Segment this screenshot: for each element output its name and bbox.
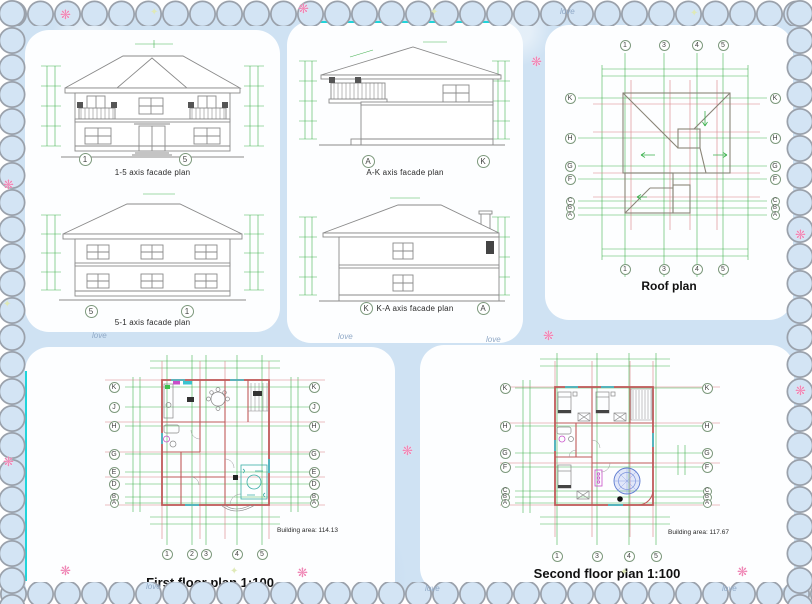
building-area-label: Building area: 114.13: [277, 527, 338, 534]
axis-marker: A: [566, 211, 575, 220]
axis-marker: K: [109, 382, 120, 393]
axis-marker: K: [360, 302, 373, 315]
sparkle-icon: ✦: [3, 300, 11, 310]
axis-marker: 5: [85, 305, 98, 318]
axis-marker: G: [702, 448, 713, 459]
love-text: love: [560, 8, 575, 16]
panel-second-floor: 1 3 4 5 K H G F C B A K H G F C B A Buil…: [420, 345, 794, 592]
axis-marker: 2: [187, 549, 198, 560]
sparkle-icon: ✦: [230, 567, 238, 577]
axis-marker: 3: [659, 264, 670, 275]
sparkle-icon: ✦: [430, 8, 438, 18]
axis-marker: 1: [79, 153, 92, 166]
axis-marker: A: [362, 155, 375, 168]
axis-marker: K: [309, 382, 320, 393]
flower-icon: ❋: [298, 2, 309, 15]
axis-marker: 1: [181, 305, 194, 318]
flower-icon: ❋: [795, 228, 806, 241]
axis-marker: 1: [162, 549, 173, 560]
axis-marker: 3: [201, 549, 212, 560]
axis-marker: D: [309, 479, 320, 490]
axis-marker: A: [310, 499, 319, 508]
flower-icon: ❋: [3, 455, 14, 468]
axis-marker: K: [477, 155, 490, 168]
axis-marker: A: [501, 499, 510, 508]
first-floor-drawing: [25, 347, 395, 604]
flower-icon: ❋: [531, 55, 542, 68]
axis-marker: F: [565, 174, 576, 185]
love-text: love: [338, 333, 353, 341]
axis-marker: F: [770, 174, 781, 185]
axis-marker: 5: [718, 40, 729, 51]
sparkle-icon: ✦: [690, 9, 698, 19]
axis-marker: A: [703, 499, 712, 508]
axis-marker: H: [309, 421, 320, 432]
axis-marker: 4: [692, 40, 703, 51]
collage: 1 5 1-5 axis facade plan: [0, 0, 812, 604]
panel-first-floor: 1 2 3 4 5 K J H G E D B A K J H G E D B …: [25, 347, 395, 604]
axis-marker: H: [565, 133, 576, 144]
love-text: love: [146, 583, 161, 591]
cyan-accent-line: [305, 21, 503, 23]
axis-marker: G: [109, 449, 120, 460]
axis-marker: F: [500, 462, 511, 473]
axis-marker: 4: [692, 264, 703, 275]
facade-caption: A-K axis facade plan: [287, 168, 523, 177]
axis-marker: G: [309, 449, 320, 460]
love-text: love: [486, 336, 501, 344]
facade-caption: 5-1 axis facade plan: [25, 318, 280, 327]
facade-side-ak-drawing: [295, 35, 515, 151]
axis-marker: H: [500, 421, 511, 432]
axis-marker: G: [500, 448, 511, 459]
roof-plan-title: Roof plan: [545, 279, 793, 293]
love-text: love: [425, 585, 440, 593]
axis-marker: E: [109, 467, 120, 478]
facade-rear-drawing: [35, 190, 270, 302]
axis-marker: J: [309, 402, 320, 413]
axis-marker: K: [702, 383, 713, 394]
axis-marker: K: [770, 93, 781, 104]
cyan-accent-line: [25, 371, 27, 581]
axis-marker: E: [309, 467, 320, 478]
flower-icon: ❋: [60, 8, 71, 21]
facade-side-ka-drawing: [295, 191, 515, 305]
axis-marker: J: [109, 402, 120, 413]
axis-marker: D: [109, 479, 120, 490]
building-area-label: Building area: 117.67: [668, 529, 729, 536]
facade-front-drawing: [35, 38, 270, 158]
axis-marker: 3: [659, 40, 670, 51]
axis-marker: K: [500, 383, 511, 394]
axis-marker: 5: [651, 551, 662, 562]
flower-icon: ❋: [543, 329, 554, 342]
panel-roof-plan: 1 3 4 5 1 3 4 5 K H G F C B A K H G F C …: [545, 25, 793, 320]
axis-marker: 4: [232, 549, 243, 560]
axis-marker: 4: [624, 551, 635, 562]
flower-icon: ❋: [60, 564, 71, 577]
axis-marker: 5: [179, 153, 192, 166]
flower-icon: ❋: [402, 444, 413, 457]
roof-plan-drawing: [545, 25, 793, 295]
love-text: love: [722, 585, 737, 593]
axis-marker: G: [565, 161, 576, 172]
axis-marker: A: [771, 211, 780, 220]
axis-marker: H: [702, 421, 713, 432]
panel-facades-1-5: 1 5 1-5 axis facade plan: [25, 30, 280, 332]
axis-marker: G: [770, 161, 781, 172]
flower-icon: ❋: [3, 178, 14, 191]
flower-icon: ❋: [737, 565, 748, 578]
axis-marker: A: [477, 302, 490, 315]
axis-marker: K: [565, 93, 576, 104]
axis-marker: H: [770, 133, 781, 144]
panel-facades-a-k: A K A-K axis facade plan: [287, 21, 523, 343]
axis-marker: F: [702, 462, 713, 473]
second-floor-drawing: [420, 345, 794, 592]
flower-icon: ❋: [297, 566, 308, 579]
axis-marker: 3: [592, 551, 603, 562]
sparkle-icon: ✦: [620, 568, 628, 578]
facade-caption: 1-5 axis facade plan: [25, 168, 280, 177]
axis-marker: 1: [620, 264, 631, 275]
love-text: love: [92, 332, 107, 340]
first-floor-title: First floor plan 1:100: [25, 575, 395, 590]
axis-marker: 1: [552, 551, 563, 562]
axis-marker: A: [110, 499, 119, 508]
axis-marker: H: [109, 421, 120, 432]
sparkle-icon: ✦: [150, 8, 158, 18]
flower-icon: ❋: [795, 384, 806, 397]
axis-marker: 5: [718, 264, 729, 275]
axis-marker: 1: [620, 40, 631, 51]
axis-marker: 5: [257, 549, 268, 560]
